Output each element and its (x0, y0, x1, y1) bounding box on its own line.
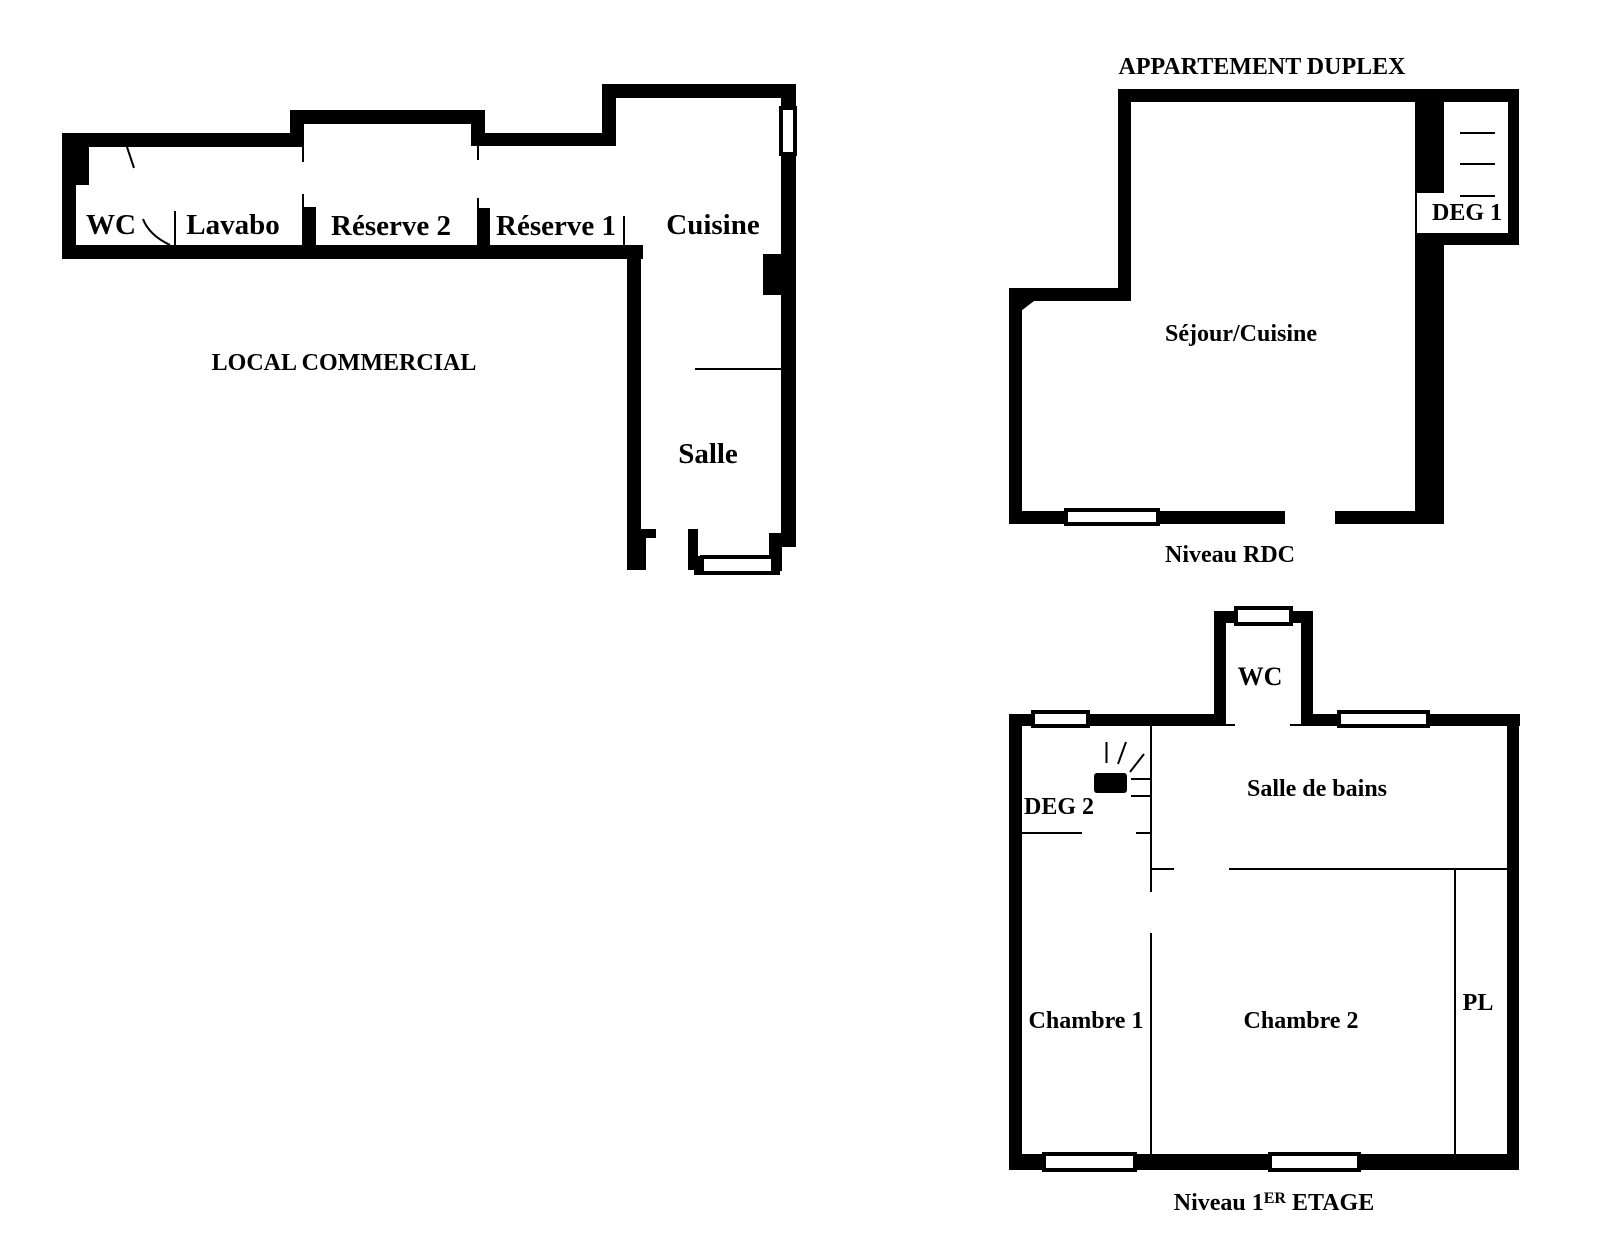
svg-text:Chambre 1: Chambre 1 (1029, 1008, 1144, 1034)
svg-text:WC: WC (86, 209, 136, 241)
svg-text:WC: WC (1238, 662, 1283, 691)
svg-text:Salle de bains: Salle de bains (1247, 776, 1387, 802)
svg-text:LOCAL COMMERCIAL: LOCAL COMMERCIAL (212, 350, 477, 376)
svg-text:Salle: Salle (678, 438, 738, 470)
svg-text:APPARTEMENT DUPLEX: APPARTEMENT DUPLEX (1119, 54, 1407, 80)
svg-text:Niveau RDC: Niveau RDC (1165, 542, 1295, 568)
svg-text:DEG 1: DEG 1 (1432, 200, 1502, 226)
svg-text:Cuisine: Cuisine (666, 209, 760, 241)
svg-text:Réserve 1: Réserve 1 (496, 210, 616, 242)
svg-text:PL: PL (1463, 990, 1494, 1016)
svg-text:Réserve 2: Réserve 2 (331, 210, 451, 242)
svg-text:DEG 2: DEG 2 (1024, 794, 1094, 820)
svg-text:Chambre 2: Chambre 2 (1244, 1008, 1359, 1034)
svg-text:Séjour/Cuisine: Séjour/Cuisine (1165, 321, 1317, 347)
svg-text:Lavabo: Lavabo (186, 209, 279, 241)
